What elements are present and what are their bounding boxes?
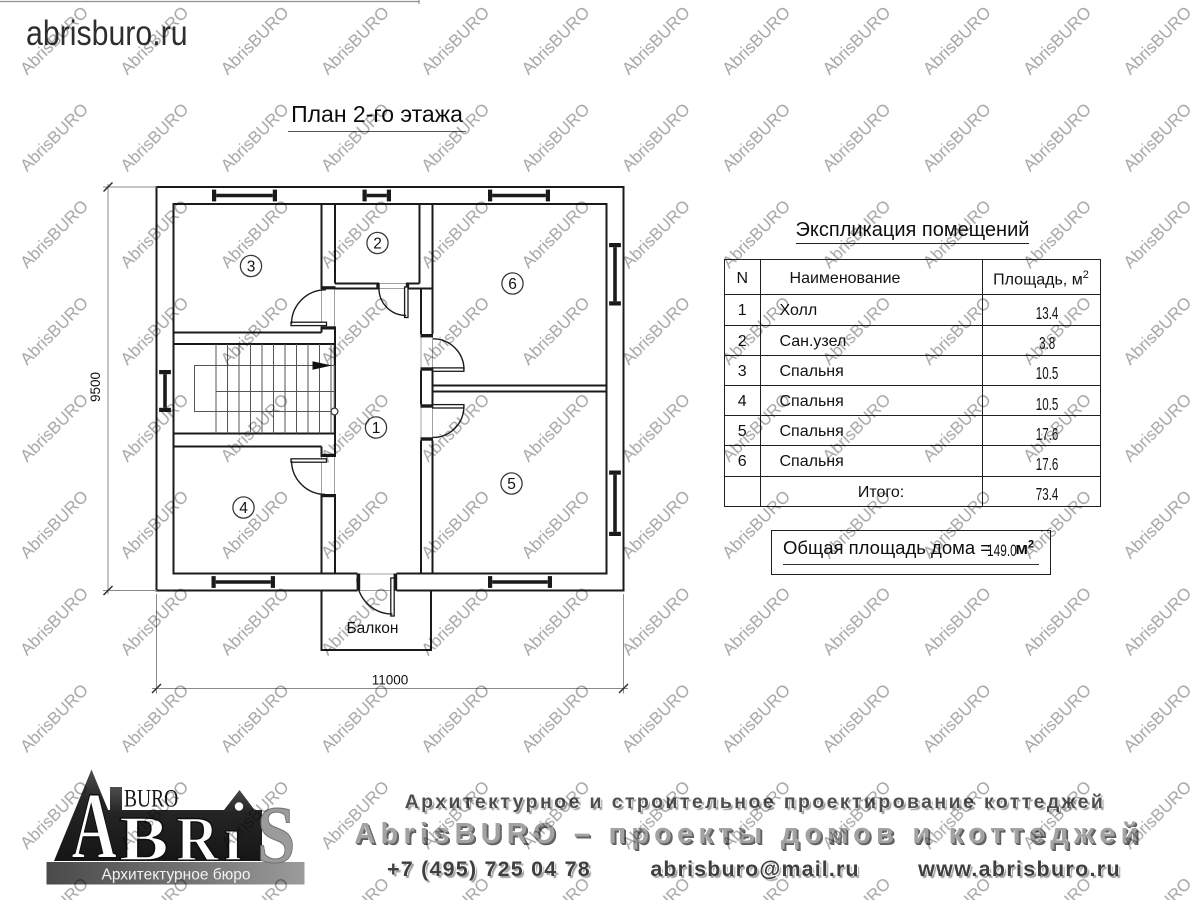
svg-text:S: S	[257, 791, 295, 881]
svg-text:11000: 11000	[372, 673, 409, 688]
svg-text:4: 4	[239, 500, 248, 517]
svg-text:B: B	[119, 803, 169, 874]
svg-text:6: 6	[508, 276, 517, 293]
svg-text:Балкон: Балкон	[347, 620, 399, 637]
svg-text:3: 3	[247, 259, 256, 276]
svg-text:1: 1	[372, 420, 381, 437]
svg-text:2: 2	[373, 236, 382, 253]
svg-text:R: R	[176, 804, 219, 875]
svg-text:9500: 9500	[88, 372, 103, 402]
svg-text:ı: ı	[224, 803, 242, 874]
svg-text:A: A	[72, 774, 117, 879]
svg-text:5: 5	[507, 476, 516, 493]
